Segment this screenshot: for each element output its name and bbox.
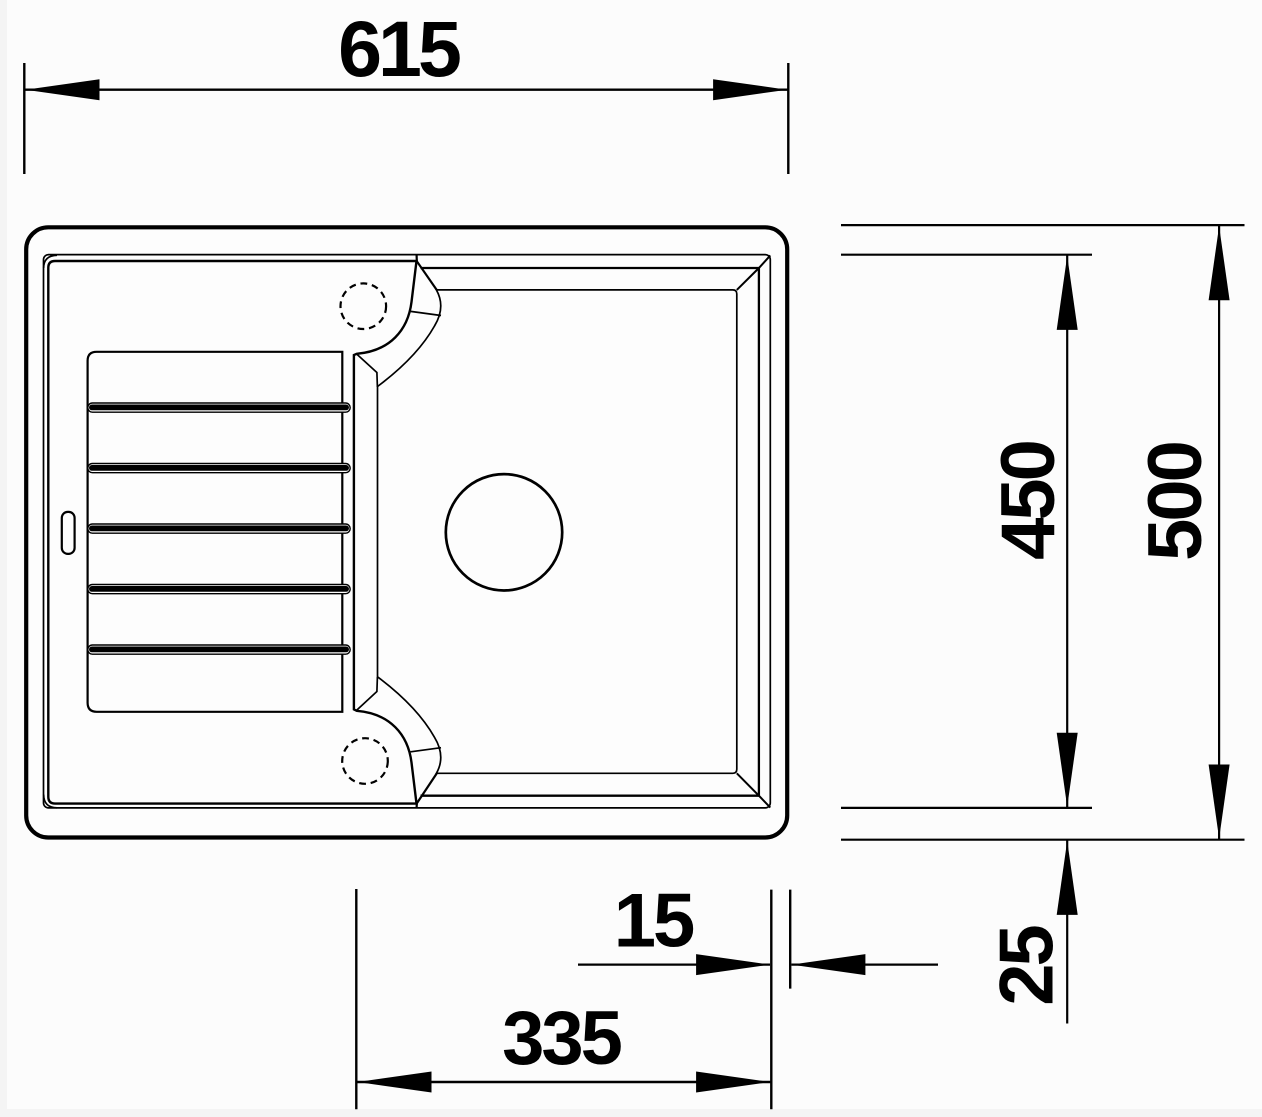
svg-text:500: 500 xyxy=(1133,442,1218,561)
svg-text:335: 335 xyxy=(502,996,622,1081)
svg-text:450: 450 xyxy=(986,441,1071,560)
svg-text:25: 25 xyxy=(985,926,1070,1006)
svg-text:15: 15 xyxy=(614,879,694,964)
svg-text:615: 615 xyxy=(338,4,460,93)
